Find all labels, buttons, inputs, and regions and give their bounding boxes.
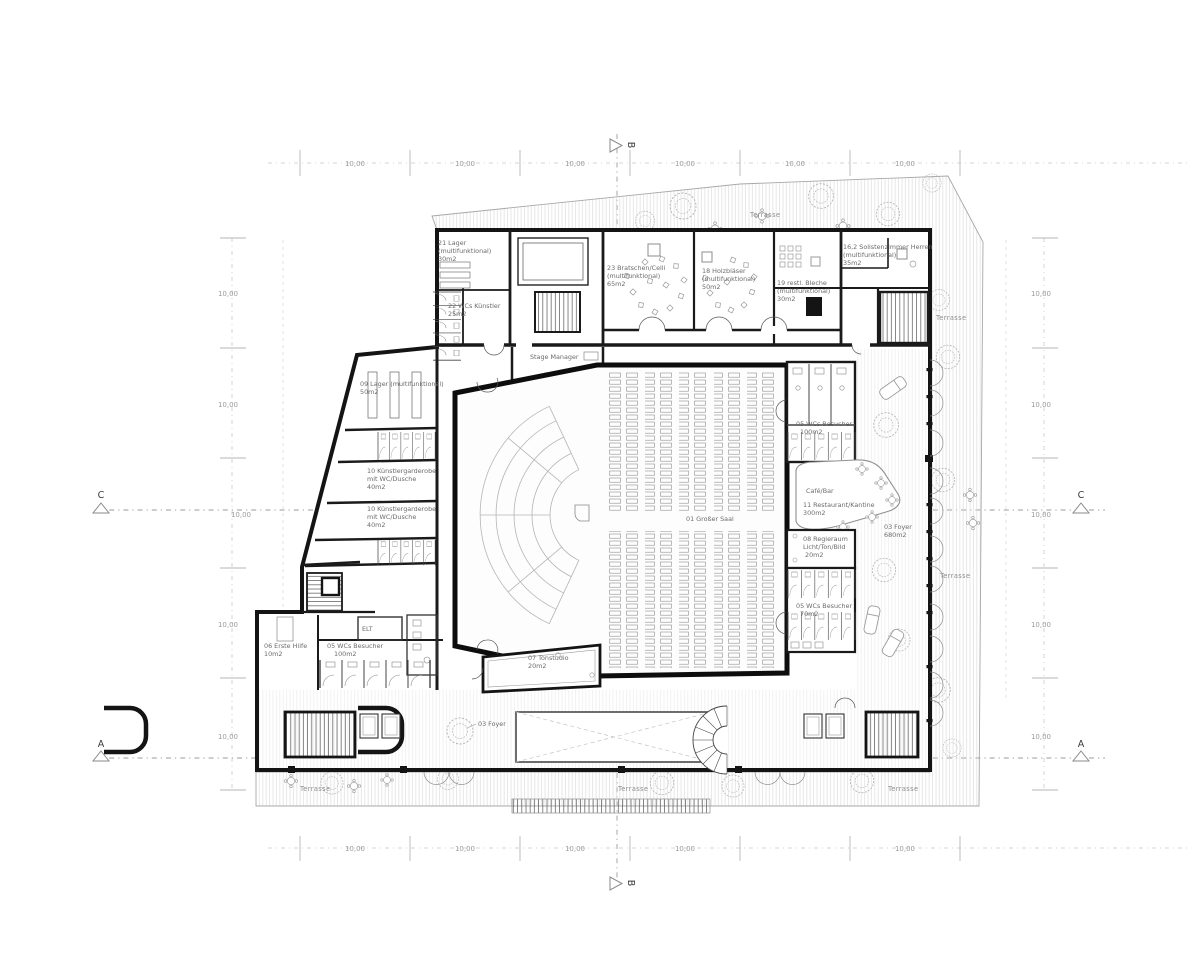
svg-text:20m2: 20m2 [805, 551, 823, 559]
dim-label: 10,00 [218, 733, 238, 741]
svg-text:(multifunktional): (multifunktional) [607, 272, 660, 280]
stair-top-right [880, 292, 928, 343]
dim-label: 10,00 [675, 845, 695, 853]
svg-text:100m2: 100m2 [334, 650, 357, 658]
svg-text:20m2: 20m2 [528, 662, 546, 670]
dim-label: 10,00 [565, 160, 585, 168]
dim-label: 10,00 [218, 401, 238, 409]
grosser-saal [455, 365, 787, 676]
svg-text:10m2: 10m2 [264, 650, 282, 658]
svg-text:05 WCs Besucher: 05 WCs Besucher [796, 602, 852, 610]
svg-text:50m2: 50m2 [360, 388, 378, 396]
svg-text:70m2: 70m2 [800, 610, 818, 618]
room-label-elt: ELT [362, 625, 373, 633]
section-label-b: B [625, 880, 636, 887]
room-label-foyer-bottom: 03 Foyer [478, 720, 506, 728]
section-label-c: C [98, 490, 105, 501]
dim-label: 10,00 [1031, 290, 1051, 298]
dim-label: 10,00 [895, 845, 915, 853]
section-marker-b-bottom [610, 877, 622, 890]
stair-top-middle [535, 292, 580, 332]
dim-label: 10,00 [1031, 511, 1051, 519]
section-marker-a-right [1073, 751, 1089, 761]
dim-label: 10,00 [1031, 733, 1051, 741]
svg-text:03 Foyer: 03 Foyer [884, 523, 912, 531]
terrace-label-bottom-right: Terrasse [887, 785, 918, 793]
section-label-c: C [1078, 490, 1085, 501]
svg-text:65m2: 65m2 [607, 280, 625, 288]
svg-text:22 WCs Künstler: 22 WCs Künstler [448, 302, 501, 310]
svg-text:18 Holzbläser: 18 Holzbläser [702, 267, 746, 275]
terrace-label-right-2: Terrasse [939, 572, 970, 580]
dim-label: 10,00 [231, 511, 251, 519]
floor-plan-drawing: 10,00 10,00 10,00 10,00 10,00 10,00 10,0… [0, 0, 1200, 960]
svg-text:07 Tonstudio: 07 Tonstudio [528, 654, 569, 662]
svg-text:50m2: 50m2 [702, 283, 720, 291]
terrace-label-right-1: Terrasse [935, 314, 966, 322]
svg-text:(multifunktional): (multifunktional) [777, 287, 830, 295]
svg-text:05 WCs Besucher: 05 WCs Besucher [796, 420, 852, 428]
svg-text:19 restl. Bleche: 19 restl. Bleche [777, 279, 827, 287]
terrace-label-bottom-center: Terrasse [617, 785, 648, 793]
stair-bottom-right [866, 712, 918, 757]
dim-label: 10,00 [675, 160, 695, 168]
svg-text:23 Bratschen/Celli: 23 Bratschen/Celli [607, 264, 666, 272]
section-marker-c-right [1073, 503, 1089, 513]
terrace-label-top: Terrasse [749, 211, 780, 219]
svg-text:mit WC/Dusche: mit WC/Dusche [367, 475, 416, 483]
svg-text:mit WC/Dusche: mit WC/Dusche [367, 513, 416, 521]
svg-text:300m2: 300m2 [803, 509, 826, 517]
svg-text:30m2: 30m2 [777, 295, 795, 303]
svg-text:100m2: 100m2 [800, 428, 823, 436]
room-label-grosser-saal: 01 Großer Saal [686, 515, 734, 523]
section-label-a: A [1078, 739, 1085, 750]
svg-text:30m2: 30m2 [438, 255, 456, 263]
svg-text:10 Künstlergarderobe: 10 Künstlergarderobe [367, 467, 436, 475]
floor-plan-page: 10,00 10,00 10,00 10,00 10,00 10,00 10,0… [0, 0, 1200, 960]
svg-text:(multifunktional): (multifunktional) [438, 247, 491, 255]
svg-text:11 Restaurant/Kantine: 11 Restaurant/Kantine [803, 501, 875, 509]
svg-text:05 WCs Besucher: 05 WCs Besucher [327, 642, 383, 650]
svg-text:16,2 Solistenzimmer Herren: 16,2 Solistenzimmer Herren [843, 243, 933, 251]
terrace-label-bottom-left: Terrasse [299, 785, 330, 793]
svg-text:25m2: 25m2 [448, 310, 466, 318]
dim-label: 10,00 [895, 160, 915, 168]
dim-label: 10,00 [1031, 401, 1051, 409]
section-marker-c-left [93, 503, 109, 513]
stair-bottom-left [285, 712, 355, 757]
room-label-cafe-bar: Café/Bar [806, 487, 834, 495]
svg-text:08 Regieraum: 08 Regieraum [803, 535, 848, 543]
svg-text:06 Erste Hilfe: 06 Erste Hilfe [264, 642, 307, 650]
dim-label: 10,00 [565, 845, 585, 853]
dim-label: 10,00 [785, 160, 805, 168]
svg-text:Licht/Ton/Bild: Licht/Ton/Bild [803, 543, 845, 551]
svg-text:(multifunktional): (multifunktional) [702, 275, 755, 283]
section-label-b: B [625, 142, 636, 149]
dim-label: 10,00 [1031, 621, 1051, 629]
dim-label: 10,00 [218, 290, 238, 298]
dim-label: 10,00 [345, 845, 365, 853]
svg-text:40m2: 40m2 [367, 521, 385, 529]
svg-text:09 Lager (multifunktional): 09 Lager (multifunktional) [360, 380, 444, 388]
section-marker-b-top [610, 139, 622, 152]
room-label-stage-manager: Stage Manager [530, 353, 579, 361]
svg-text:21 Lager: 21 Lager [438, 239, 467, 247]
dim-label: 10,00 [218, 621, 238, 629]
section-label-a: A [98, 739, 105, 750]
dim-label: 10,00 [455, 160, 475, 168]
svg-text:(multifunktional): (multifunktional) [843, 251, 896, 259]
svg-text:680m2: 680m2 [884, 531, 907, 539]
svg-text:40m2: 40m2 [367, 483, 385, 491]
dim-label: 10,00 [455, 845, 475, 853]
svg-text:10 Künstlergarderobe: 10 Künstlergarderobe [367, 505, 436, 513]
dim-label: 10,00 [345, 160, 365, 168]
svg-text:35m2: 35m2 [843, 259, 861, 267]
